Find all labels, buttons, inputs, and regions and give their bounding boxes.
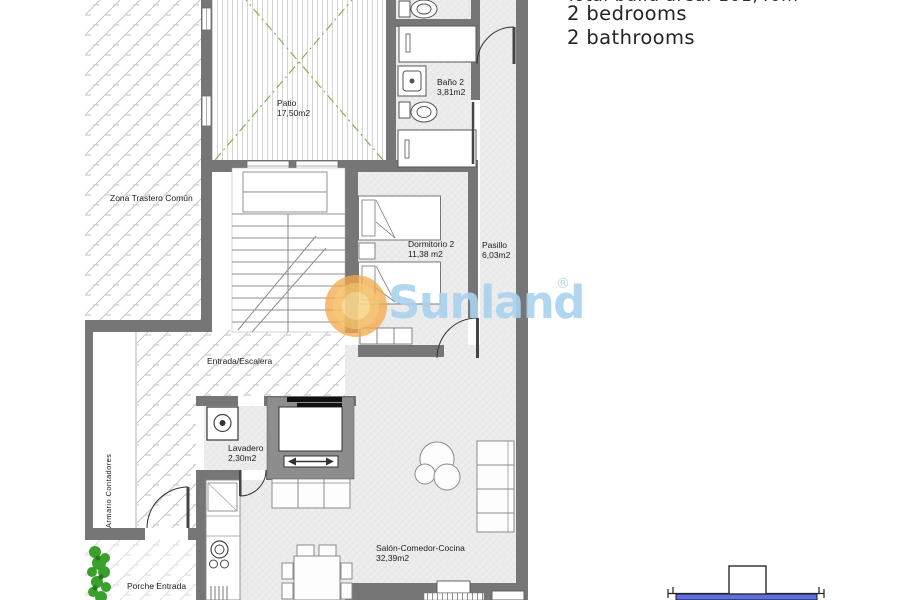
floorplan-screenshot: Sunland ® Zona Trastero Común Patio 17,5… [0, 0, 900, 600]
room-name: Dormitorio 2 [408, 239, 454, 249]
label-salon: Salón-Comedor-Cocina 32,39m2 [376, 543, 465, 563]
label-porche: Porche Entrada [127, 581, 186, 591]
room-area: 17,50m2 [277, 108, 310, 118]
watermark-text: Sunland [388, 276, 584, 329]
sofa-icon [477, 441, 514, 532]
room-name: Zona Trastero Común [110, 193, 193, 203]
label-entrada: Entrada/Escalera [207, 356, 272, 366]
label-patio: Patio 17,50m2 [277, 98, 310, 118]
watermark-sun-icon [325, 275, 387, 337]
bathtub-icon [399, 26, 476, 62]
room-area: 11,38 m2 [408, 249, 454, 259]
kitchen-counter [206, 480, 240, 600]
room-area: 32,39m2 [376, 553, 465, 563]
room-name: Patio [277, 98, 310, 108]
label-armario: Armario Contadores [104, 398, 113, 528]
toilet-icon [399, 0, 437, 18]
room-area: 3,81m2 [437, 87, 465, 97]
label-bano2: Baño 2 3,81m2 [437, 77, 465, 97]
watermark-registered-mark: ® [556, 276, 570, 292]
patio-floor [212, 0, 386, 160]
armario-column [93, 330, 137, 528]
label-lavadero: Lavadero 2,30m2 [228, 443, 263, 463]
header-bedrooms: 2 bedrooms [567, 2, 695, 26]
room-name: Salón-Comedor-Cocina [376, 543, 465, 553]
watermark: Sunland ® [325, 275, 584, 337]
label-dormitorio2: Dormitorio 2 11,38 m2 [408, 239, 454, 259]
header-specs: 2 bedrooms 2 bathrooms [567, 2, 695, 49]
room-name: Armario Contadores [104, 398, 113, 528]
bed-icon [359, 196, 441, 240]
room-name: Baño 2 [437, 77, 465, 87]
label-zona-trastero: Zona Trastero Común [110, 193, 193, 203]
washing-machine-icon [207, 407, 238, 440]
zona-trastero-hatch-floor [85, 0, 201, 322]
bathtub-icon [398, 130, 476, 167]
room-area: 6,03m2 [482, 250, 510, 260]
nightstand-icon [359, 243, 375, 259]
site-sketch [668, 566, 824, 600]
label-pasillo: Pasillo 6,03m2 [482, 240, 510, 260]
room-name: Porche Entrada [127, 581, 186, 591]
room-name: Lavadero [228, 443, 263, 453]
header-bathrooms: 2 bathrooms [567, 26, 695, 50]
elevator-icon [267, 397, 354, 479]
room-name: Pasillo [482, 240, 510, 250]
room-area: 2,30m2 [228, 453, 263, 463]
room-name: Entrada/Escalera [207, 356, 272, 366]
sink-icon [398, 66, 426, 96]
sofa-icon [272, 478, 350, 508]
